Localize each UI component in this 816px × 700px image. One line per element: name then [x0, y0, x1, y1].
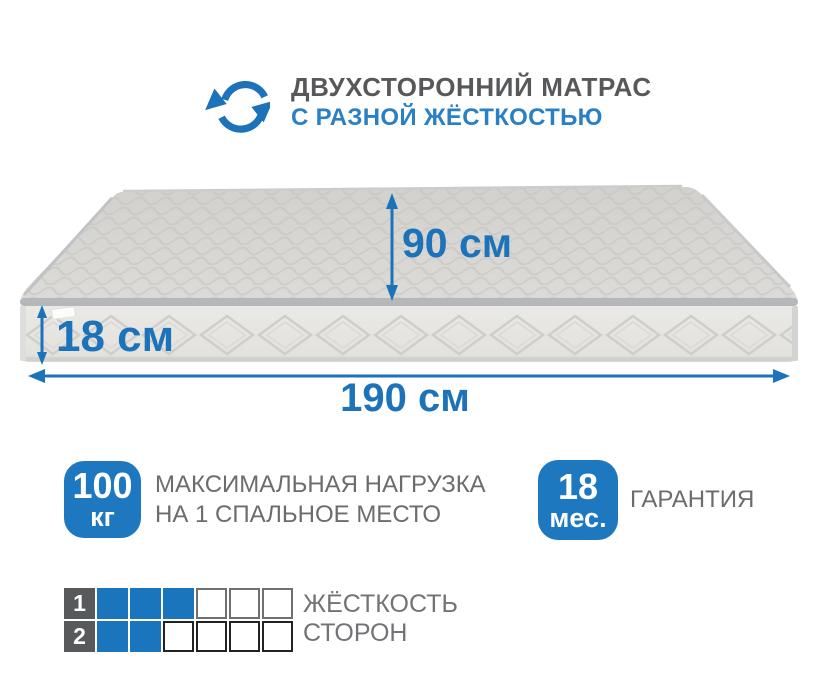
height-dimension-label: 18 см [56, 315, 174, 359]
warranty-value: 18 [538, 469, 618, 505]
hardness-empty-square [262, 588, 293, 619]
mattress-infographic: ДВУХСТОРОННИЙ МАТРАС С РАЗНОЙ ЖЁСТКОСТЬЮ [0, 0, 816, 700]
warranty-unit: мес. [538, 505, 618, 532]
hardness-row-side1: 1 [64, 588, 293, 619]
hardness-filled-square [130, 621, 161, 652]
hardness-filled-square [163, 588, 194, 619]
hardness-filled-square [130, 588, 161, 619]
hardness-filled-square [97, 588, 128, 619]
warranty-description: ГАРАНТИЯ [630, 460, 754, 540]
hardness-scale: 1 2 [64, 588, 293, 654]
hardness-empty-square [262, 621, 293, 652]
side-number-square: 2 [64, 621, 95, 652]
max-load-badge: 100 кг [64, 461, 141, 538]
max-load-description-line2: НА 1 СПАЛЬНОЕ МЕСТО [155, 500, 486, 530]
max-load-description: МАКСИМАЛЬНАЯ НАГРУЗКА НА 1 СПАЛЬНОЕ МЕСТ… [155, 461, 486, 538]
warranty-badge: 18 мес. [538, 460, 618, 540]
hardness-empty-square [229, 621, 260, 652]
hardness-empty-square [196, 621, 227, 652]
page-title: ДВУХСТОРОННИЙ МАТРАС [291, 72, 652, 103]
hardness-caption-line2: СТОРОН [303, 619, 458, 648]
hardness-empty-square [163, 621, 194, 652]
page-subtitle: С РАЗНОЙ ЖЁСТКОСТЬЮ [291, 104, 603, 132]
width-dimension-label: 190 см [280, 378, 530, 418]
hardness-squares-side1 [97, 588, 293, 619]
hardness-row-side2: 2 [64, 621, 293, 652]
hardness-caption-line1: ЖЁСТКОСТЬ [303, 590, 458, 619]
max-load-value: 100 [64, 468, 141, 504]
hardness-empty-square [196, 588, 227, 619]
hardness-scale-caption: ЖЁСТКОСТЬ СТОРОН [303, 590, 458, 648]
hardness-squares-side2 [97, 621, 293, 652]
side-number-square: 1 [64, 588, 95, 619]
hardness-filled-square [97, 621, 128, 652]
hardness-empty-square [229, 588, 260, 619]
rotate-arrows-icon [204, 68, 270, 144]
max-load-unit: кг [64, 504, 141, 531]
mattress-piping [20, 298, 798, 306]
max-load-description-line1: МАКСИМАЛЬНАЯ НАГРУЗКА [155, 470, 486, 500]
depth-dimension-label: 90 см [402, 223, 512, 264]
mattress-scene: 90 см 18 см 190 см [0, 165, 816, 427]
warranty-description-line1: ГАРАНТИЯ [630, 485, 754, 515]
